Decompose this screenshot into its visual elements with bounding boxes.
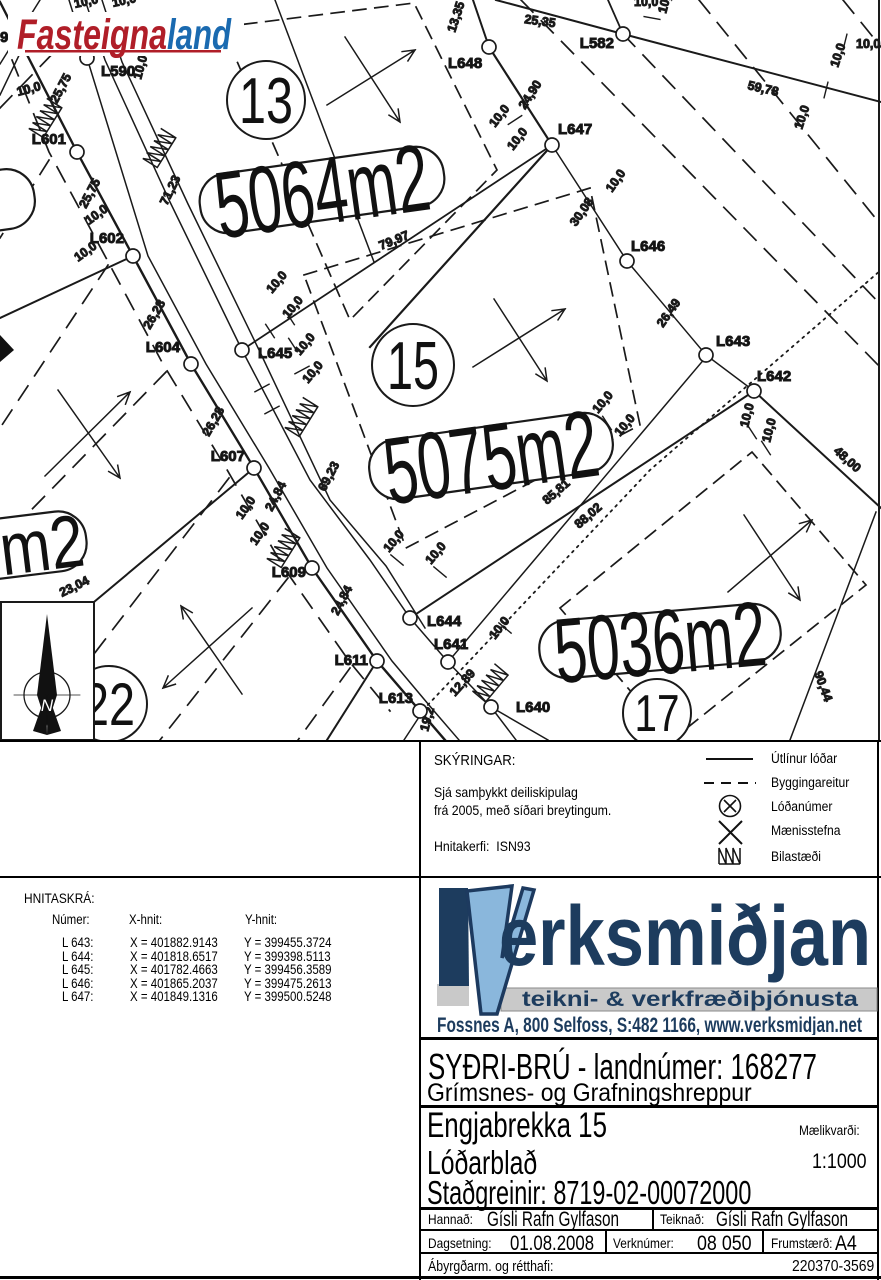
svg-text:L604: L604	[146, 339, 181, 356]
svg-text:12,89: 12,89	[447, 666, 478, 699]
svg-text:26,28: 26,28	[199, 404, 227, 438]
svg-text:26,49: 26,49	[654, 296, 683, 330]
svg-text:L641: L641	[434, 636, 468, 653]
svg-text:10,0: 10,0	[381, 527, 407, 555]
svg-text:L647: L647	[558, 121, 592, 138]
svg-text:10,0: 10,0	[73, 0, 100, 11]
svg-text:10,0: 10,0	[15, 79, 42, 99]
svg-text:90,44: 90,44	[811, 669, 835, 703]
svg-text:Fossnes A, 800 Selfoss, S:482: Fossnes A, 800 Selfoss, S:482 1166, www.…	[437, 1013, 862, 1035]
svg-text:m2: m2	[0, 499, 88, 592]
svg-text:erksmiðjan: erksmiðjan	[499, 889, 871, 983]
svg-text:10,0: 10,0	[486, 102, 512, 130]
svg-text:10,0: 10,0	[828, 41, 849, 69]
svg-text:10,0: 10,0	[264, 268, 290, 296]
svg-text:L607: L607	[211, 448, 245, 465]
svg-text:10,0: 10,0	[792, 103, 813, 131]
svg-text:48,00: 48,00	[831, 444, 864, 475]
svg-text:L613: L613	[379, 690, 413, 707]
svg-text:L582: L582	[580, 35, 614, 52]
svg-text:L648: L648	[448, 55, 482, 72]
svg-text:L642: L642	[757, 368, 791, 385]
svg-text:13: 13	[239, 64, 293, 137]
svg-text:10,0: 10,0	[603, 167, 628, 195]
svg-text:teikni- & verkfræðiþjónusta: teikni- & verkfræðiþjónusta	[522, 988, 858, 1011]
svg-text:L601: L601	[32, 131, 66, 148]
svg-text:10,0: 10,0	[280, 293, 306, 321]
svg-text:9: 9	[0, 29, 8, 46]
svg-text:L645: L645	[258, 345, 292, 362]
svg-text:71,23: 71,23	[157, 173, 183, 207]
svg-text:10,0: 10,0	[612, 411, 638, 439]
svg-text:L602: L602	[90, 230, 124, 247]
svg-text:10,0: 10,0	[292, 330, 318, 358]
svg-text:10,0: 10,0	[111, 0, 138, 10]
svg-text:5075m2: 5075m2	[377, 391, 605, 526]
svg-text:10,0: 10,0	[737, 402, 756, 429]
svg-text:10,0: 10,0	[423, 539, 449, 567]
svg-text:10,0: 10,0	[590, 388, 616, 416]
svg-text:13,35: 13,35	[445, 0, 468, 34]
svg-text:L609: L609	[272, 564, 306, 581]
svg-text:25,35: 25,35	[524, 12, 557, 30]
svg-text:10,0: 10,0	[655, 0, 675, 15]
svg-text:24,84: 24,84	[328, 583, 355, 617]
svg-text:15: 15	[387, 328, 439, 404]
svg-text:L640: L640	[516, 699, 550, 716]
svg-text:30,08: 30,08	[567, 195, 596, 229]
svg-text:10,0: 10,0	[504, 125, 530, 153]
svg-text:10,0: 10,0	[759, 417, 778, 444]
svg-text:25,75: 25,75	[47, 71, 74, 105]
svg-text:17: 17	[635, 685, 680, 742]
svg-text:L643: L643	[716, 333, 750, 350]
svg-text:L646: L646	[631, 238, 665, 255]
svg-text:10,0: 10,0	[856, 37, 880, 51]
svg-text:10,0: 10,0	[233, 494, 258, 522]
svg-text:88,02: 88,02	[572, 500, 605, 531]
svg-text:10,0: 10,0	[247, 520, 272, 548]
svg-text:L590: L590	[101, 63, 135, 80]
svg-text:10,0: 10,0	[634, 0, 658, 9]
svg-text:L644: L644	[427, 613, 462, 630]
svg-text:L611: L611	[335, 652, 368, 669]
svg-text:10,0: 10,0	[300, 358, 326, 386]
svg-text:59,78: 59,78	[746, 78, 780, 99]
svg-text:N: N	[41, 696, 54, 715]
